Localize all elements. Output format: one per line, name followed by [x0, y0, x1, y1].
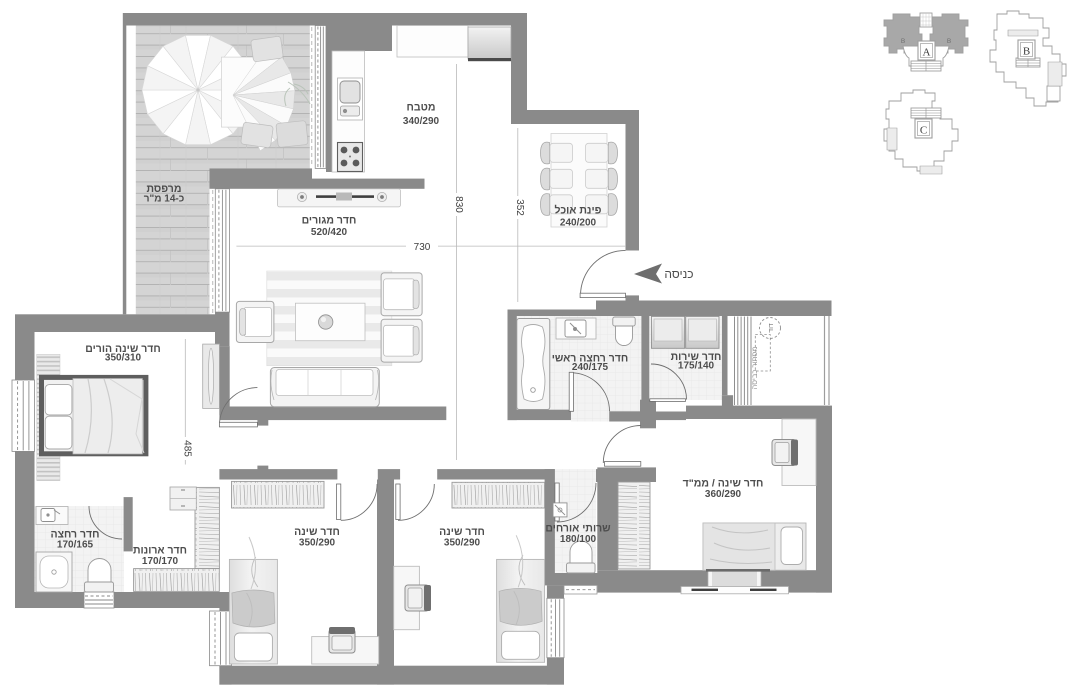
svg-text:מסתור כביסה: מסתור כביסה [750, 346, 759, 389]
svg-text:כניסה: כניסה [664, 267, 693, 281]
svg-text:כ-14 מ"ר: כ-14 מ"ר [144, 194, 185, 205]
svg-text:180/100: 180/100 [560, 534, 597, 545]
svg-text:חדר מגורים: חדר מגורים [302, 215, 357, 227]
svg-text:חדר שינה: חדר שינה [294, 526, 340, 538]
svg-text:240/175: 240/175 [572, 362, 609, 373]
svg-text:B: B [901, 38, 905, 45]
svg-text:170/170: 170/170 [142, 556, 179, 567]
svg-text:360/290: 360/290 [705, 489, 742, 500]
svg-text:170/165: 170/165 [57, 540, 94, 551]
svg-text:485: 485 [182, 440, 193, 457]
svg-text:חדר שינה: חדר שינה [439, 526, 485, 538]
svg-text:340/290: 340/290 [403, 116, 440, 127]
svg-text:חדר ארונות: חדר ארונות [133, 545, 187, 557]
svg-text:C: C [920, 125, 927, 137]
svg-text:B: B [947, 38, 951, 45]
svg-text:350/290: 350/290 [299, 538, 336, 549]
svg-text:דוד: דוד [768, 323, 775, 333]
svg-text:A: A [923, 47, 931, 59]
svg-text:352: 352 [514, 199, 525, 216]
svg-text:350/310: 350/310 [105, 353, 142, 364]
svg-text:חדר שינה / ממ"ד: חדר שינה / ממ"ד [683, 478, 764, 490]
svg-text:פינת אוכל: פינת אוכל [555, 205, 602, 217]
svg-text:שרותי אורחים: שרותי אורחים [545, 523, 611, 535]
svg-text:B: B [1023, 46, 1030, 58]
svg-text:520/420: 520/420 [311, 227, 348, 238]
svg-text:350/290: 350/290 [444, 538, 481, 549]
svg-text:מטבח: מטבח [407, 102, 436, 114]
svg-text:730: 730 [414, 242, 431, 253]
svg-text:240/200: 240/200 [560, 218, 597, 229]
svg-text:175/140: 175/140 [678, 361, 715, 372]
svg-text:830: 830 [453, 196, 464, 213]
